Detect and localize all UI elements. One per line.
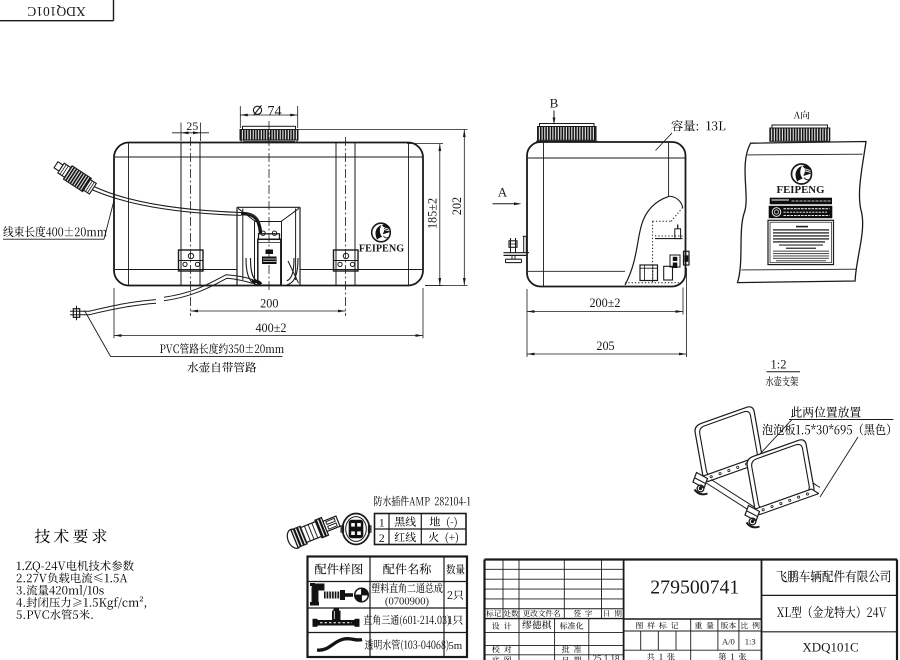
svg-text:B: B [550,96,559,111]
svg-text:205: 205 [596,339,614,353]
svg-text:25: 25 [186,119,198,133]
svg-text:FEIPENG: FEIPENG [777,184,826,196]
svg-text:400±2: 400±2 [255,321,286,335]
svg-text:200: 200 [260,297,278,311]
svg-text:1:3: 1:3 [745,636,756,646]
svg-text:(0700900): (0700900) [385,596,430,607]
svg-text:FEIPENG: FEIPENG [359,244,404,255]
svg-text:A/0: A/0 [722,636,735,646]
svg-text:279500741: 279500741 [650,577,739,599]
svg-text:202: 202 [450,197,464,215]
svg-text:74: 74 [267,104,281,120]
svg-text:185±2: 185±2 [425,198,439,229]
svg-text:1:2: 1:2 [771,358,787,372]
svg-text:A: A [498,185,508,200]
svg-text:XDQ101C: XDQ101C [27,4,86,19]
svg-text:200±2: 200±2 [589,296,620,310]
svg-text:2: 2 [379,531,385,545]
svg-text:XDQ101C: XDQ101C [802,640,858,655]
svg-text:5m: 5m [448,640,462,652]
svg-text:1: 1 [379,515,385,529]
svg-text:25.1.18: 25.1.18 [593,654,621,660]
